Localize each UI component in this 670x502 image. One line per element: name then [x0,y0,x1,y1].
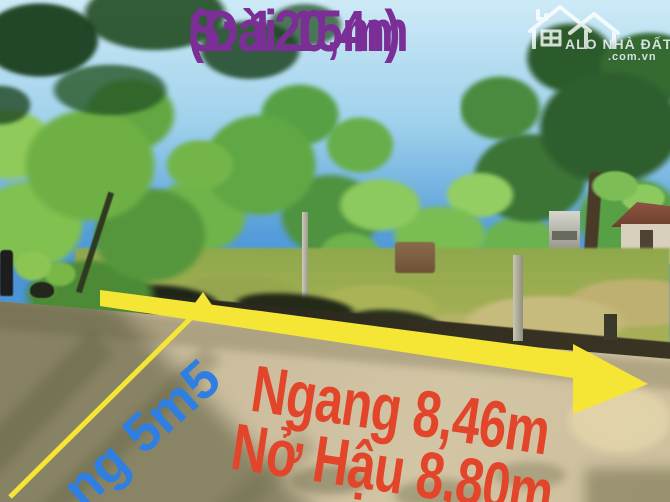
watermark-domain: .com.vn [608,51,657,63]
area-label-line2: (Dài 15m) [188,4,400,60]
watermark: ALO NHÀ ĐẤT .com.vn [520,0,670,70]
land-listing-photo: S: 120,4m (Dài 15m) Ngang 8,46m Nở Hậu 8… [0,0,670,502]
watermark-site-name: ALO NHÀ ĐẤT [565,36,670,52]
